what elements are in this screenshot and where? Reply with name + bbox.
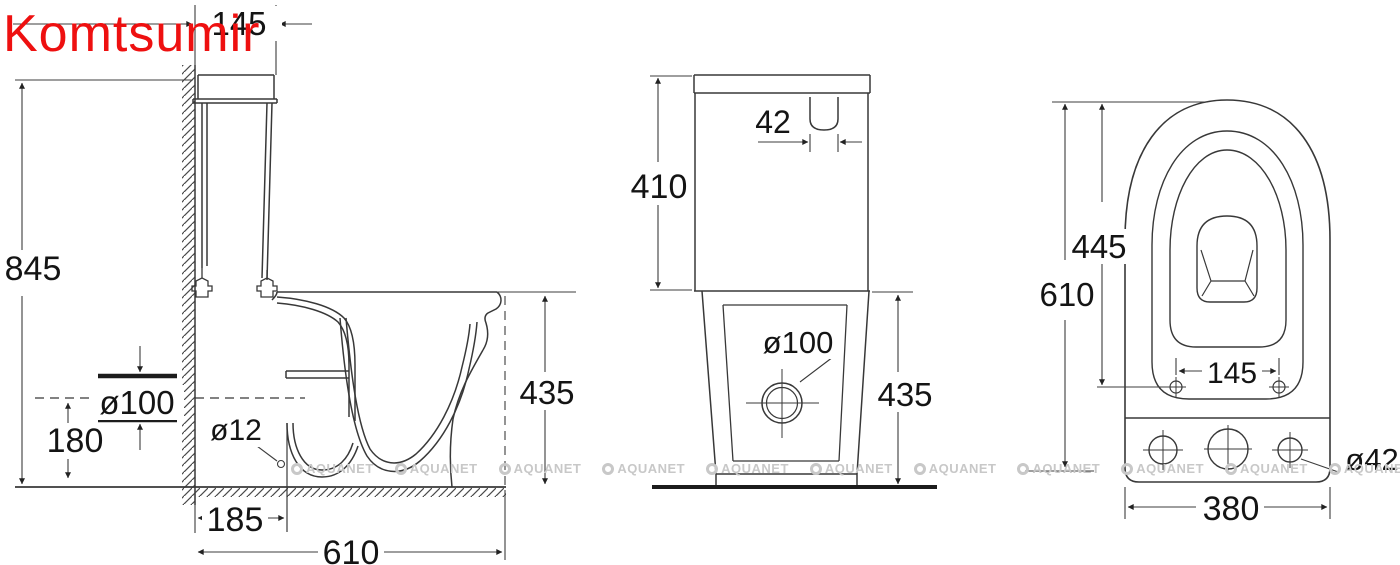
technical-drawing-page: 145 845 ø100 180 ø12 185 610 435 410 42 … bbox=[0, 0, 1400, 565]
dim-label-seat-length-445: 445 bbox=[1066, 229, 1132, 264]
rim-channel-inner bbox=[277, 303, 349, 417]
floor-hatch bbox=[195, 488, 506, 497]
tank-lid bbox=[193, 75, 277, 103]
dim-label-outlet-height-180: 180 bbox=[42, 423, 108, 459]
front-hook bbox=[483, 292, 501, 350]
inlet-spud bbox=[286, 371, 349, 378]
outline-outer bbox=[1125, 100, 1330, 482]
brand-logo-text: Komtsumir bbox=[3, 8, 260, 60]
button-notch bbox=[810, 97, 838, 130]
d100-leader bbox=[760, 357, 833, 382]
tank-lid bbox=[694, 75, 870, 93]
wall-hatch bbox=[182, 65, 195, 505]
bowl-funnel bbox=[1201, 250, 1254, 296]
dim-label-outlet-dist-185: 185 bbox=[202, 502, 268, 538]
front-profile bbox=[450, 350, 483, 487]
trap-inner bbox=[293, 423, 353, 470]
dim-label-height-845: 845 bbox=[0, 251, 66, 287]
dim-label-bowl-height-435: 435 bbox=[514, 375, 580, 410]
dim-label-depth-610: 610 bbox=[318, 535, 384, 565]
outlet-crosshair bbox=[746, 369, 819, 438]
dim-label-bowl-height-435-back: 435 bbox=[872, 377, 938, 412]
tank-flange-right bbox=[257, 270, 277, 297]
dim-label-tank-height-410: 410 bbox=[626, 169, 692, 205]
dim-label-width-380: 380 bbox=[1198, 491, 1264, 527]
bowl-cup-outer bbox=[340, 318, 477, 471]
dim-label-outlet-d100: ø100 bbox=[90, 385, 184, 420]
tank-walls bbox=[202, 103, 272, 280]
toilet-technical-drawing bbox=[0, 0, 1400, 565]
rim-outline bbox=[1170, 150, 1286, 347]
fixing-hole bbox=[278, 461, 285, 468]
dim-label-outlet-d100-back: ø100 bbox=[754, 326, 842, 359]
side-section-view bbox=[13, 5, 576, 560]
side-dimensions bbox=[13, 5, 576, 560]
dim-label-notch-42: 42 bbox=[748, 105, 798, 139]
dim-label-hinge-spacing-145: 145 bbox=[1202, 358, 1262, 390]
base-holes bbox=[1143, 425, 1308, 473]
dim-label-fixing-d12: ø12 bbox=[204, 415, 268, 447]
dim-label-total-length-610: 610 bbox=[1034, 277, 1100, 312]
dim-label-hole-d42: ø42 bbox=[1338, 443, 1400, 476]
